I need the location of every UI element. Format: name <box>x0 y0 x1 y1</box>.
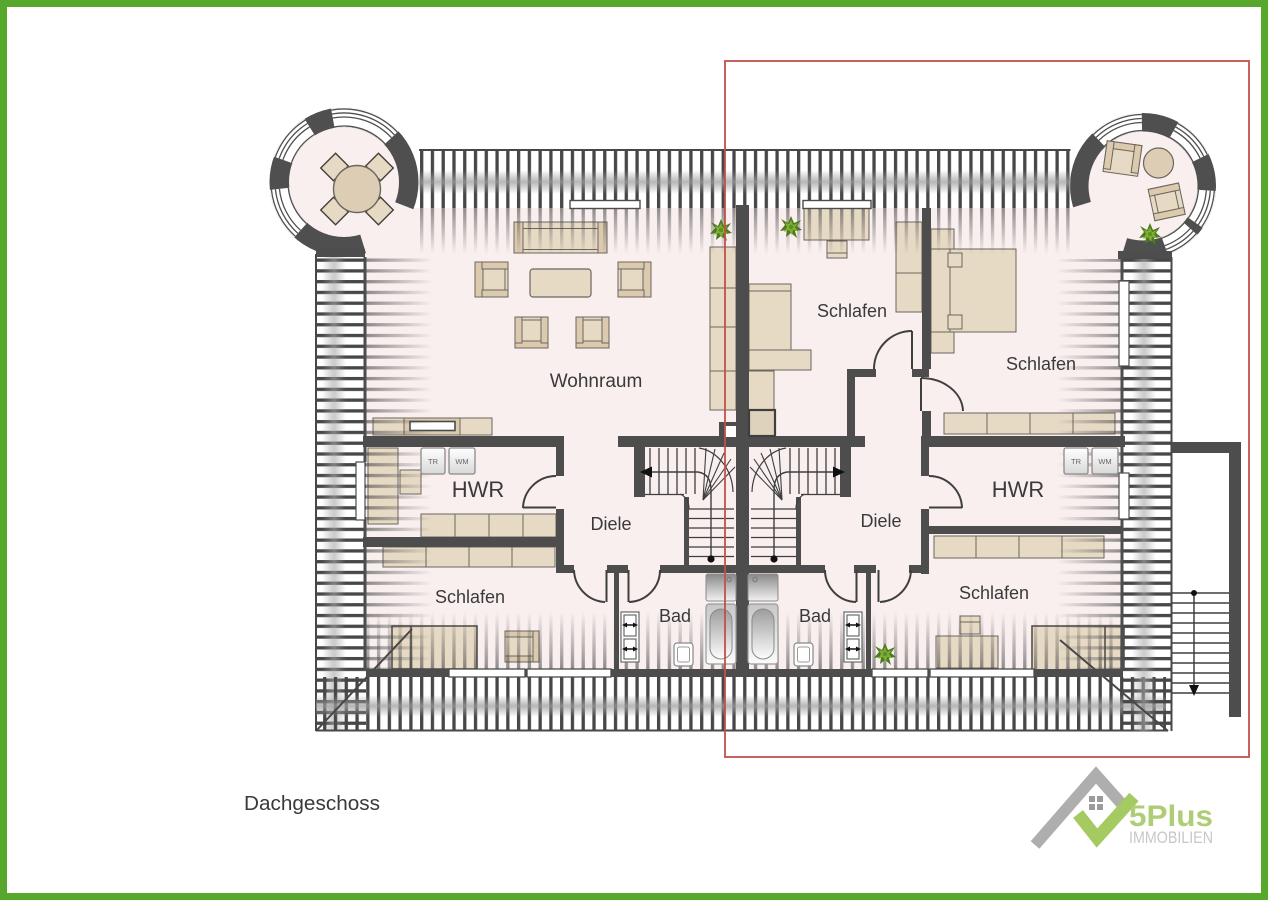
svg-text:WM: WM <box>1098 457 1111 466</box>
svg-text:IMMOBILIEN: IMMOBILIEN <box>1129 829 1213 847</box>
svg-text:TR: TR <box>1071 457 1082 466</box>
svg-text:Schlafen: Schlafen <box>959 583 1029 603</box>
svg-text:Bad: Bad <box>659 606 691 626</box>
svg-text:Schlafen: Schlafen <box>1006 354 1076 374</box>
svg-text:WM: WM <box>455 457 468 466</box>
svg-text:Diele: Diele <box>590 514 631 534</box>
svg-text:Wohnraum: Wohnraum <box>550 371 643 392</box>
svg-text:TR: TR <box>428 457 439 466</box>
svg-text:Bad: Bad <box>799 606 831 626</box>
svg-text:Schlafen: Schlafen <box>817 301 887 321</box>
svg-text:Dachgeschoss: Dachgeschoss <box>244 792 380 815</box>
svg-text:HWR: HWR <box>452 477 505 502</box>
svg-text:HWR: HWR <box>992 477 1045 502</box>
svg-text:Diele: Diele <box>860 511 901 531</box>
svg-text:Schlafen: Schlafen <box>435 587 505 607</box>
